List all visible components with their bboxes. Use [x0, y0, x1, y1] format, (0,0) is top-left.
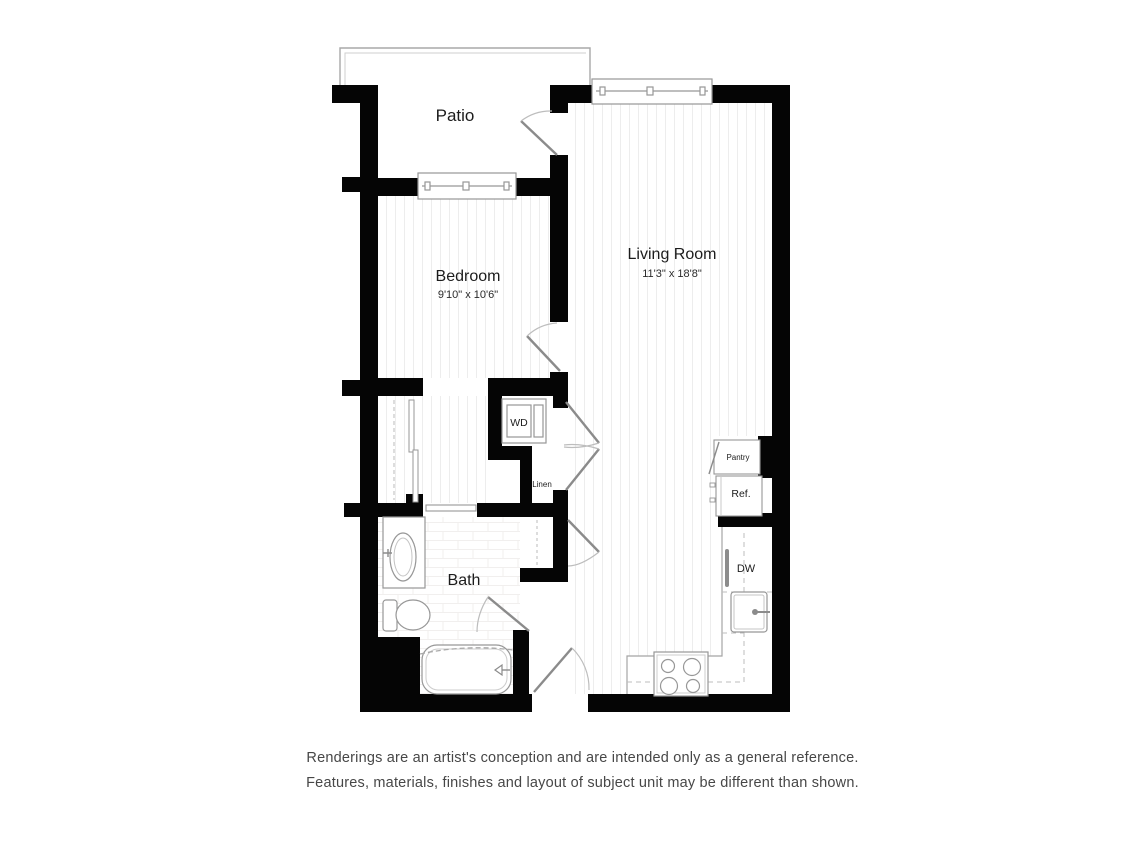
kitchen-sink [731, 592, 770, 632]
wd-label: WD [510, 417, 528, 429]
pantry-label: Pantry [726, 453, 749, 462]
floor-plan-canvas: Patio Bedroom 9'10" x 10'6" Living Room … [0, 0, 1125, 844]
stove [654, 652, 708, 696]
dw-label: DW [737, 563, 756, 575]
bedroom-window [418, 173, 516, 199]
floor-plan-page: Patio Bedroom 9'10" x 10'6" Living Room … [0, 0, 1125, 844]
bath-vanity [383, 517, 425, 588]
disclaimer-line-2: Features, materials, finishes and layout… [20, 771, 1125, 796]
bath-pocket-door [426, 505, 476, 511]
bathtub [422, 645, 511, 694]
disclaimer: Renderings are an artist's conception an… [20, 746, 1125, 796]
patio-door [521, 111, 557, 155]
living-room-dimensions: 11'3" x 18'8" [642, 268, 702, 280]
disclaimer-line-1: Renderings are an artist's conception an… [20, 746, 1125, 771]
toilet [383, 600, 430, 631]
dishwasher-handle [725, 549, 729, 587]
bath-label: Bath [448, 572, 481, 589]
bedroom-dimensions: 9'10" x 10'6" [438, 289, 498, 301]
ref-label: Ref. [731, 488, 750, 500]
living-room-window [592, 79, 712, 104]
bedroom-label: Bedroom [436, 268, 501, 285]
living-room-label: Living Room [628, 246, 717, 263]
patio-label: Patio [436, 106, 475, 125]
linen-label: Linen [532, 480, 552, 489]
bedroom-floor [378, 196, 550, 378]
